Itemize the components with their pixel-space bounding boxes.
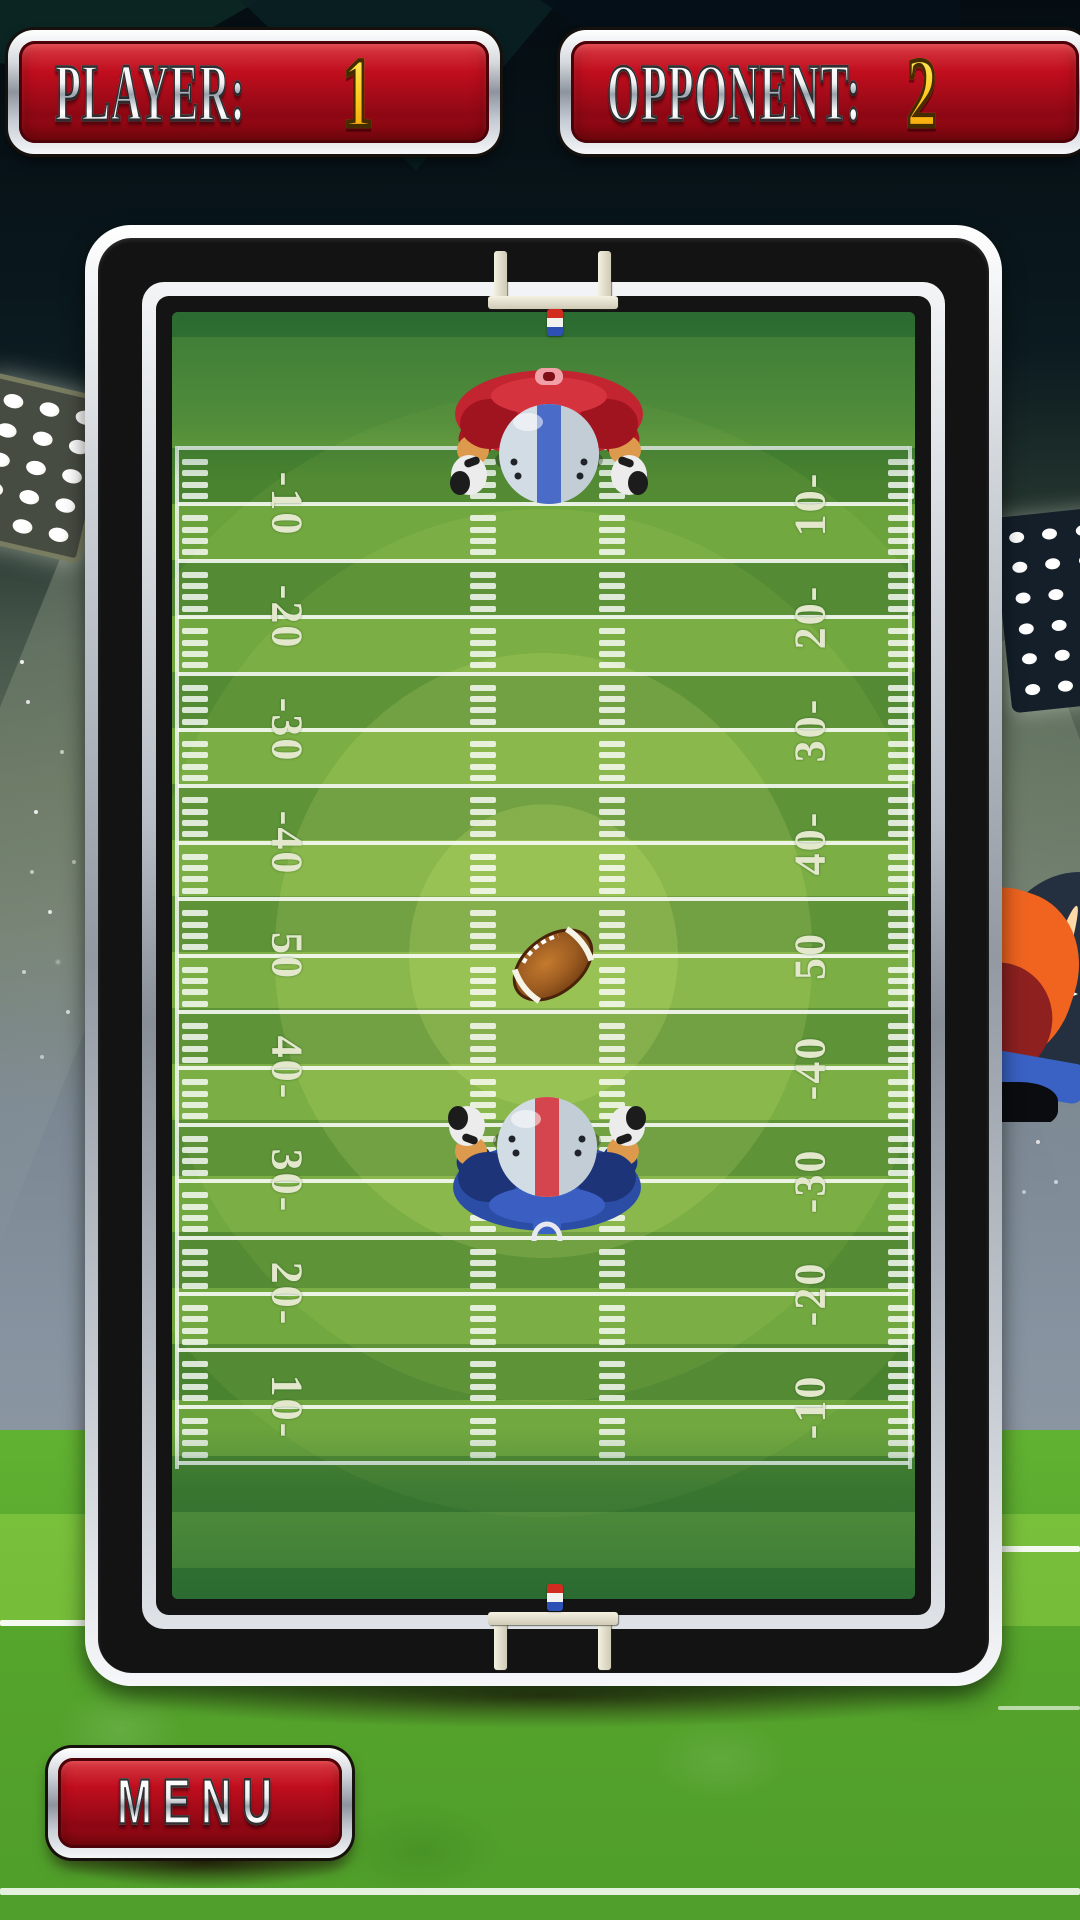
hash-mark bbox=[470, 707, 496, 713]
hash-mark bbox=[599, 1023, 625, 1029]
hash-mark bbox=[599, 1429, 625, 1435]
yard-number-left: -10 bbox=[262, 444, 313, 564]
hash-mark bbox=[470, 1384, 496, 1390]
hash-mark bbox=[888, 831, 914, 837]
hash-mark bbox=[182, 1339, 208, 1345]
hash-mark bbox=[182, 865, 208, 871]
hash-mark bbox=[470, 1023, 496, 1029]
glove-left bbox=[448, 1106, 485, 1146]
hash-mark bbox=[182, 606, 208, 612]
hash-mark bbox=[599, 1316, 625, 1322]
hash-mark bbox=[599, 764, 625, 770]
hash-mark bbox=[182, 594, 208, 600]
opponent-score-panel: OPPONENT: 2 bbox=[560, 30, 1080, 154]
hash-mark bbox=[470, 989, 496, 995]
hash-mark bbox=[182, 538, 208, 544]
light-bulb bbox=[1052, 619, 1068, 632]
light-bulb bbox=[47, 526, 70, 544]
hash-mark bbox=[888, 594, 914, 600]
hash-mark bbox=[599, 572, 625, 578]
hash-mark bbox=[888, 606, 914, 612]
hash-mark bbox=[470, 1271, 496, 1277]
hash-mark bbox=[182, 1192, 208, 1198]
light-bulb bbox=[1009, 531, 1025, 544]
hash-mark bbox=[470, 583, 496, 589]
hash-mark bbox=[182, 1226, 208, 1232]
hash-mark bbox=[888, 493, 914, 499]
hash-mark bbox=[470, 944, 496, 950]
hash-mark bbox=[470, 1316, 496, 1322]
player-paddle-art bbox=[440, 1091, 654, 1241]
hash-mark bbox=[599, 640, 625, 646]
hash-mark bbox=[599, 1305, 625, 1311]
hash-mark bbox=[182, 752, 208, 758]
hash-mark bbox=[599, 933, 625, 939]
hash-mark bbox=[888, 1271, 914, 1277]
hash-mark bbox=[599, 628, 625, 634]
hash-mark bbox=[888, 809, 914, 815]
light-bulb bbox=[1045, 558, 1061, 571]
hash-mark bbox=[470, 775, 496, 781]
hash-mark bbox=[182, 1057, 208, 1063]
hash-mark bbox=[470, 741, 496, 747]
hash-mark bbox=[182, 809, 208, 815]
light-bulb bbox=[18, 488, 41, 506]
frame-chrome-band: -1010--2020--3030--4040-505040--4030--30… bbox=[142, 282, 945, 1629]
hash-mark bbox=[888, 944, 914, 950]
hash-mark bbox=[470, 1395, 496, 1401]
hash-mark bbox=[888, 549, 914, 555]
hash-mark bbox=[888, 797, 914, 803]
light-bulb bbox=[1042, 527, 1058, 540]
hash-mark bbox=[182, 1418, 208, 1424]
hash-mark bbox=[599, 1373, 625, 1379]
hash-mark bbox=[182, 527, 208, 533]
hash-mark bbox=[182, 628, 208, 634]
hash-mark bbox=[182, 493, 208, 499]
hash-mark bbox=[888, 1429, 914, 1435]
hash-mark bbox=[470, 752, 496, 758]
hash-mark bbox=[182, 944, 208, 950]
menu-button[interactable]: MENU bbox=[48, 1748, 352, 1858]
hash-mark bbox=[888, 1158, 914, 1164]
hash-mark bbox=[599, 989, 625, 995]
hash-mark bbox=[182, 549, 208, 555]
hash-mark bbox=[182, 775, 208, 781]
hash-mark bbox=[888, 854, 914, 860]
yard-number-left: 50 bbox=[262, 896, 313, 1016]
hash-mark bbox=[470, 876, 496, 882]
hash-mark bbox=[888, 1373, 914, 1379]
hash-mark bbox=[182, 1102, 208, 1108]
hash-mark bbox=[182, 831, 208, 837]
hash-mark bbox=[182, 1046, 208, 1052]
hash-mark bbox=[182, 820, 208, 826]
hash-mark bbox=[470, 820, 496, 826]
hash-mark bbox=[470, 1283, 496, 1289]
hash-mark bbox=[599, 888, 625, 894]
hash-mark bbox=[888, 696, 914, 702]
hash-mark bbox=[888, 1328, 914, 1334]
hash-mark bbox=[888, 1204, 914, 1210]
hash-mark bbox=[182, 1136, 208, 1142]
hash-mark bbox=[182, 1452, 208, 1458]
goal-post-crossbar bbox=[488, 1612, 618, 1625]
hash-mark bbox=[888, 1440, 914, 1446]
menu-button-label: MENU bbox=[117, 1767, 283, 1839]
hash-mark bbox=[182, 662, 208, 668]
hash-mark bbox=[182, 1204, 208, 1210]
menu-button-face: MENU bbox=[58, 1758, 342, 1848]
grass-yard-line bbox=[998, 1706, 1080, 1710]
hash-mark bbox=[888, 515, 914, 521]
hash-mark bbox=[888, 685, 914, 691]
hash-mark bbox=[599, 922, 625, 928]
hash-mark bbox=[470, 527, 496, 533]
hash-mark bbox=[182, 470, 208, 476]
light-bulb bbox=[54, 496, 77, 514]
hash-mark bbox=[599, 606, 625, 612]
hash-mark bbox=[470, 1079, 496, 1085]
hash-mark bbox=[599, 809, 625, 815]
hash-mark bbox=[888, 775, 914, 781]
hash-mark bbox=[182, 1271, 208, 1277]
yard-number-left: -40 bbox=[262, 783, 313, 903]
grass-yard-line bbox=[0, 1888, 1080, 1895]
hash-mark bbox=[599, 594, 625, 600]
hash-mark bbox=[182, 922, 208, 928]
hash-mark bbox=[182, 854, 208, 860]
hash-mark bbox=[182, 1429, 208, 1435]
hash-mark bbox=[470, 978, 496, 984]
hash-mark bbox=[470, 640, 496, 646]
hash-mark bbox=[470, 1046, 496, 1052]
frame-black-band: -1010--2020--3030--4040-505040--4030--30… bbox=[98, 238, 989, 1673]
hash-mark bbox=[599, 1046, 625, 1052]
hash-mark bbox=[470, 1034, 496, 1040]
hash-mark bbox=[470, 888, 496, 894]
hash-mark bbox=[182, 1440, 208, 1446]
yard-number-right: -20 bbox=[785, 1234, 836, 1354]
hash-mark bbox=[599, 876, 625, 882]
grass-yard-line bbox=[998, 1546, 1080, 1552]
light-bulb bbox=[1058, 680, 1074, 693]
hash-mark bbox=[182, 1079, 208, 1085]
hash-mark bbox=[182, 1328, 208, 1334]
hash-mark bbox=[470, 696, 496, 702]
hash-mark bbox=[888, 1452, 914, 1458]
game-screen: PLAYER: 1 OPPONENT: 2 -1010--2020--3030-… bbox=[0, 0, 1080, 1920]
light-bulb bbox=[1018, 622, 1034, 635]
hash-mark bbox=[182, 515, 208, 521]
hash-mark bbox=[888, 1091, 914, 1097]
hash-mark bbox=[888, 1418, 914, 1424]
hash-mark bbox=[888, 719, 914, 725]
hash-mark bbox=[470, 910, 496, 916]
hash-mark bbox=[888, 1147, 914, 1153]
hash-mark bbox=[599, 1418, 625, 1424]
hash-mark bbox=[888, 662, 914, 668]
hash-mark bbox=[599, 752, 625, 758]
hash-mark bbox=[182, 910, 208, 916]
hash-mark bbox=[182, 1316, 208, 1322]
hash-mark bbox=[470, 1328, 496, 1334]
floodlight-bank-right bbox=[992, 507, 1080, 714]
hash-mark bbox=[470, 1001, 496, 1007]
opponent-player-art bbox=[442, 360, 656, 510]
hash-mark bbox=[182, 696, 208, 702]
yard-number-left: -30 bbox=[262, 670, 313, 790]
floodlight-bulbs bbox=[999, 513, 1080, 706]
hash-mark bbox=[888, 628, 914, 634]
hash-mark bbox=[182, 583, 208, 589]
hash-mark bbox=[182, 1215, 208, 1221]
hash-mark bbox=[470, 1057, 496, 1063]
hash-mark bbox=[599, 831, 625, 837]
hash-mark bbox=[182, 797, 208, 803]
hash-mark bbox=[888, 1136, 914, 1142]
yard-number-left: 30- bbox=[262, 1121, 313, 1241]
hash-mark bbox=[470, 719, 496, 725]
hash-mark bbox=[599, 1079, 625, 1085]
hash-mark bbox=[888, 1057, 914, 1063]
hash-mark bbox=[599, 549, 625, 555]
hash-mark bbox=[888, 482, 914, 488]
light-bulb bbox=[60, 467, 83, 485]
hash-mark bbox=[182, 876, 208, 882]
hash-mark bbox=[599, 1361, 625, 1367]
hash-mark bbox=[888, 583, 914, 589]
hash-mark bbox=[599, 910, 625, 916]
hash-mark bbox=[888, 910, 914, 916]
hash-mark bbox=[599, 741, 625, 747]
hash-mark bbox=[182, 978, 208, 984]
hash-mark bbox=[182, 707, 208, 713]
hash-mark bbox=[182, 1361, 208, 1367]
hash-mark bbox=[599, 662, 625, 668]
hash-mark bbox=[888, 1079, 914, 1085]
hash-mark bbox=[470, 1361, 496, 1367]
hash-mark bbox=[182, 1158, 208, 1164]
hash-mark bbox=[470, 685, 496, 691]
goal-pylon-top bbox=[547, 309, 563, 336]
hash-mark bbox=[182, 741, 208, 747]
hash-mark bbox=[888, 538, 914, 544]
glove-right bbox=[611, 455, 648, 495]
hash-mark bbox=[470, 1418, 496, 1424]
hash-mark bbox=[888, 1395, 914, 1401]
hash-mark bbox=[599, 797, 625, 803]
hash-mark bbox=[182, 685, 208, 691]
light-bulb bbox=[0, 480, 5, 498]
hash-mark bbox=[182, 1001, 208, 1007]
hash-mark bbox=[599, 865, 625, 871]
hash-mark bbox=[470, 1249, 496, 1255]
hash-mark bbox=[470, 662, 496, 668]
hash-mark bbox=[182, 640, 208, 646]
yard-number-right: 40- bbox=[785, 783, 836, 903]
hash-mark bbox=[599, 854, 625, 860]
hash-mark bbox=[599, 1271, 625, 1277]
hash-mark bbox=[888, 1361, 914, 1367]
hash-mark bbox=[888, 1249, 914, 1255]
hash-mark bbox=[182, 459, 208, 465]
yard-number-right: 50 bbox=[785, 896, 836, 1016]
player-score-panel-face: PLAYER: 1 bbox=[19, 41, 489, 143]
hash-mark bbox=[599, 1057, 625, 1063]
light-bulb bbox=[2, 392, 25, 410]
hash-mark bbox=[888, 707, 914, 713]
hash-mark bbox=[470, 1339, 496, 1345]
grass-yard-line bbox=[0, 1620, 94, 1626]
yard-number-right: 10- bbox=[785, 444, 836, 564]
hash-mark bbox=[888, 1316, 914, 1322]
hash-mark bbox=[888, 651, 914, 657]
football-field[interactable]: -1010--2020--3030--4040-505040--4030--30… bbox=[172, 312, 915, 1599]
hash-mark bbox=[888, 1102, 914, 1108]
hash-mark bbox=[470, 628, 496, 634]
hash-mark bbox=[599, 538, 625, 544]
goal-post-crossbar bbox=[488, 296, 618, 309]
hash-mark bbox=[470, 606, 496, 612]
hash-mark bbox=[599, 1283, 625, 1289]
hash-mark bbox=[888, 1339, 914, 1345]
goal-pylon-bottom bbox=[547, 1584, 563, 1611]
hash-mark bbox=[599, 515, 625, 521]
hash-mark bbox=[599, 1034, 625, 1040]
light-bulb bbox=[1015, 592, 1031, 605]
hash-mark bbox=[182, 967, 208, 973]
hash-mark bbox=[888, 1226, 914, 1232]
hash-mark bbox=[888, 876, 914, 882]
yard-number-right: 30- bbox=[785, 670, 836, 790]
light-bulb bbox=[0, 421, 18, 439]
light-bulb bbox=[11, 517, 34, 535]
light-bulb bbox=[1055, 649, 1071, 662]
hash-mark bbox=[888, 1023, 914, 1029]
light-bulb bbox=[1012, 561, 1028, 574]
hash-mark bbox=[599, 1440, 625, 1446]
opponent-player bbox=[442, 360, 656, 510]
hash-mark bbox=[470, 515, 496, 521]
light-bulb bbox=[1025, 683, 1041, 696]
yard-number-left: 20- bbox=[262, 1234, 313, 1354]
hash-mark bbox=[470, 1373, 496, 1379]
light-bulb bbox=[31, 430, 54, 448]
yard-number-right: -10 bbox=[785, 1347, 836, 1467]
hash-mark bbox=[182, 1260, 208, 1266]
hash-mark bbox=[599, 651, 625, 657]
hash-mark bbox=[182, 888, 208, 894]
hash-mark bbox=[888, 1170, 914, 1176]
player-paddle[interactable] bbox=[440, 1091, 654, 1241]
player-score-panel: PLAYER: 1 bbox=[8, 30, 500, 154]
hash-mark bbox=[470, 764, 496, 770]
opponent-score-label: OPPONENT: bbox=[607, 45, 861, 139]
light-bulb bbox=[0, 451, 12, 469]
hash-mark bbox=[182, 1091, 208, 1097]
hash-mark bbox=[599, 1249, 625, 1255]
light-bulb bbox=[1048, 588, 1064, 601]
hash-mark bbox=[888, 820, 914, 826]
hash-mark bbox=[470, 854, 496, 860]
light-bulb bbox=[25, 459, 48, 477]
hash-mark bbox=[888, 865, 914, 871]
hash-mark bbox=[182, 482, 208, 488]
hash-mark bbox=[182, 1283, 208, 1289]
hash-mark bbox=[182, 1305, 208, 1311]
hash-mark bbox=[182, 651, 208, 657]
hash-mark bbox=[888, 1384, 914, 1390]
playfield-frame: -1010--2020--3030--4040-505040--4030--30… bbox=[85, 225, 1002, 1686]
hash-mark bbox=[888, 989, 914, 995]
hash-mark bbox=[470, 797, 496, 803]
player-score-value: 1 bbox=[343, 34, 373, 149]
hash-mark bbox=[888, 967, 914, 973]
hash-mark bbox=[470, 1452, 496, 1458]
hash-mark bbox=[182, 764, 208, 770]
hash-mark bbox=[182, 1373, 208, 1379]
hash-mark bbox=[182, 1147, 208, 1153]
hash-mark bbox=[599, 1260, 625, 1266]
hash-mark bbox=[470, 1260, 496, 1266]
hash-mark bbox=[470, 933, 496, 939]
hash-mark bbox=[888, 1260, 914, 1266]
hash-mark bbox=[599, 719, 625, 725]
hash-mark bbox=[470, 809, 496, 815]
light-bulb bbox=[1022, 653, 1038, 666]
hash-mark bbox=[182, 989, 208, 995]
hash-mark bbox=[599, 527, 625, 533]
hash-mark bbox=[888, 470, 914, 476]
hash-mark bbox=[182, 933, 208, 939]
hash-mark bbox=[599, 583, 625, 589]
hash-mark bbox=[182, 1023, 208, 1029]
hash-mark bbox=[888, 1113, 914, 1119]
hash-mark bbox=[182, 719, 208, 725]
hash-mark bbox=[888, 888, 914, 894]
hash-mark bbox=[470, 651, 496, 657]
hash-mark bbox=[599, 1384, 625, 1390]
hash-mark bbox=[470, 865, 496, 871]
hash-mark bbox=[182, 572, 208, 578]
hash-mark bbox=[888, 752, 914, 758]
hash-mark bbox=[599, 820, 625, 826]
hash-mark bbox=[470, 1429, 496, 1435]
hash-mark bbox=[182, 1395, 208, 1401]
hash-mark bbox=[470, 831, 496, 837]
hash-mark bbox=[599, 775, 625, 781]
hash-mark bbox=[888, 527, 914, 533]
hash-mark bbox=[599, 696, 625, 702]
yard-number-left: 10- bbox=[262, 1347, 313, 1467]
light-bulb bbox=[38, 400, 61, 418]
hash-mark bbox=[888, 1283, 914, 1289]
hash-mark bbox=[470, 1440, 496, 1446]
hash-mark bbox=[888, 978, 914, 984]
yard-number-right: -30 bbox=[785, 1121, 836, 1241]
hash-mark bbox=[182, 1034, 208, 1040]
hash-mark bbox=[599, 1339, 625, 1345]
hash-mark bbox=[470, 594, 496, 600]
hash-mark bbox=[888, 1001, 914, 1007]
hash-mark bbox=[182, 1384, 208, 1390]
hash-mark bbox=[182, 1170, 208, 1176]
opponent-score-value: 2 bbox=[907, 34, 937, 149]
hash-mark bbox=[888, 640, 914, 646]
frame-inner-black-band: -1010--2020--3030--4040-505040--4030--30… bbox=[156, 296, 931, 1615]
hash-mark bbox=[888, 572, 914, 578]
